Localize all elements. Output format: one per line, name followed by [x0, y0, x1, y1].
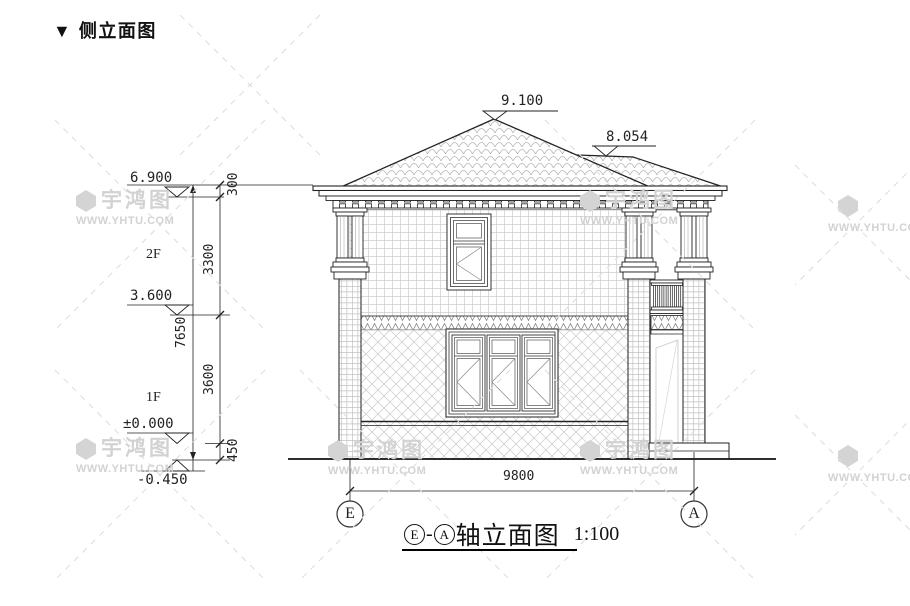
caption-underline [402, 549, 577, 551]
floor-label-1f: 1F [146, 390, 161, 406]
elevation-label-ground: -0.450 [137, 472, 188, 488]
elevation-marker-roof-peak [483, 111, 558, 120]
elevation-label-eave: 6.900 [130, 170, 172, 186]
watermark: WWW.YHTU.COM [828, 445, 910, 484]
dim-floor1-height: 3600 [202, 364, 217, 395]
pillar-porch-left [628, 279, 650, 459]
yhtu-logo-icon [580, 440, 600, 462]
elevation-marker-2f [165, 305, 189, 315]
elevation-label-0: ±0.000 [123, 416, 174, 432]
watermark-name: 宇鸿图 [101, 438, 173, 460]
watermark-url: WWW.YHTU.COM [328, 465, 426, 477]
balusters [654, 286, 681, 308]
dim-plinth: 450 [226, 439, 241, 462]
roof [341, 119, 722, 187]
elevation-marker-secondary-roof [592, 146, 656, 156]
dim-total-width: 9800 [503, 469, 534, 484]
yhtu-logo-icon [838, 445, 858, 467]
caption-separator: - [426, 523, 433, 546]
dim-floor2-height: 3300 [202, 244, 217, 275]
floor-label-2f: 2F [146, 247, 161, 263]
window-1f [446, 329, 558, 417]
caption-axis-a: A [434, 524, 455, 545]
elevation-label-roof-peak: 9.100 [501, 93, 543, 109]
porch [650, 280, 684, 459]
yhtu-logo-icon [76, 190, 96, 212]
watermark: 宇鸿图 WWW.YHTU.COM [76, 438, 174, 475]
page-title: ▼ 侧立面图 [53, 17, 157, 43]
elevation-label-secondary-roof: 8.054 [606, 129, 648, 145]
watermark-url: WWW.YHTU.COM [828, 222, 910, 234]
yhtu-logo-icon [838, 195, 858, 217]
watermark: 宇鸿图 WWW.YHTU.COM [76, 190, 174, 227]
pillar-porch-right [683, 279, 705, 443]
watermark: 宇鸿图 WWW.YHTU.COM [580, 440, 678, 477]
caption-axis-e: E [404, 524, 425, 545]
watermark-url: WWW.YHTU.COM [580, 215, 678, 227]
window-2f [447, 214, 491, 290]
yhtu-logo-icon [328, 440, 348, 462]
caption-title: 轴立面图 [456, 516, 560, 552]
dim-total-height: 7650 [174, 317, 189, 348]
watermark-name: 宇鸿图 [605, 440, 677, 462]
watermark-name: 宇鸿图 [353, 440, 425, 462]
column-pair-porch-right [675, 208, 713, 279]
drawing-caption: E - A 轴立面图 1:100 [404, 516, 619, 552]
dim-parapet: 300 [226, 173, 241, 196]
floor-divider-band [361, 316, 628, 330]
pillar-left [339, 279, 361, 459]
watermark-url: WWW.YHTU.COM [828, 472, 910, 484]
watermark: 宇鸿图 WWW.YHTU.COM [328, 440, 426, 477]
watermark-name: 宇鸿图 [605, 190, 677, 212]
watermark-name: 宇鸿图 [101, 190, 173, 212]
elevation-label-2f: 3.600 [130, 288, 172, 304]
watermark: WWW.YHTU.COM [828, 195, 910, 234]
caption-scale: 1:100 [574, 523, 620, 546]
yhtu-logo-icon [580, 190, 600, 212]
axis-letter-a: A [681, 501, 707, 527]
watermark: 宇鸿图 WWW.YHTU.COM [580, 190, 678, 227]
yhtu-logo-icon [76, 438, 96, 460]
watermark-url: WWW.YHTU.COM [76, 215, 174, 227]
watermark-url: WWW.YHTU.COM [580, 465, 678, 477]
drawing-canvas: 宇鸿图 WWW.YHTU.COM 宇鸿图 WWW.YHTU.COM WWW.YH… [0, 0, 910, 606]
axis-letter-e: E [337, 501, 363, 527]
